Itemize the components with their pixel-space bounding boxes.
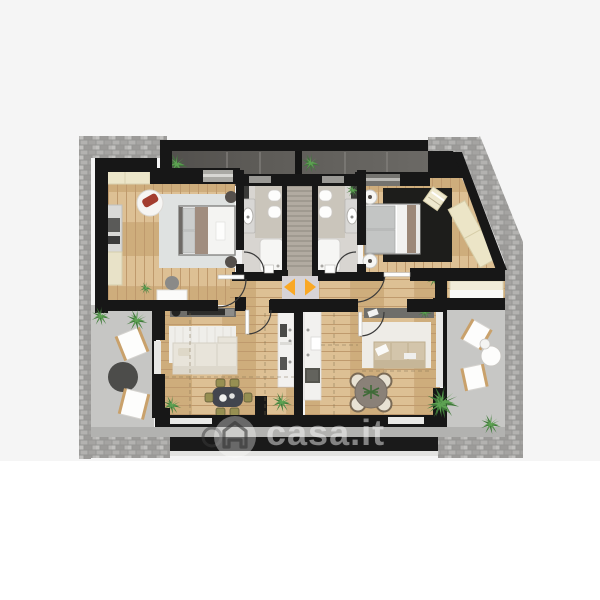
svg-text:casa.it: casa.it — [266, 412, 385, 453]
